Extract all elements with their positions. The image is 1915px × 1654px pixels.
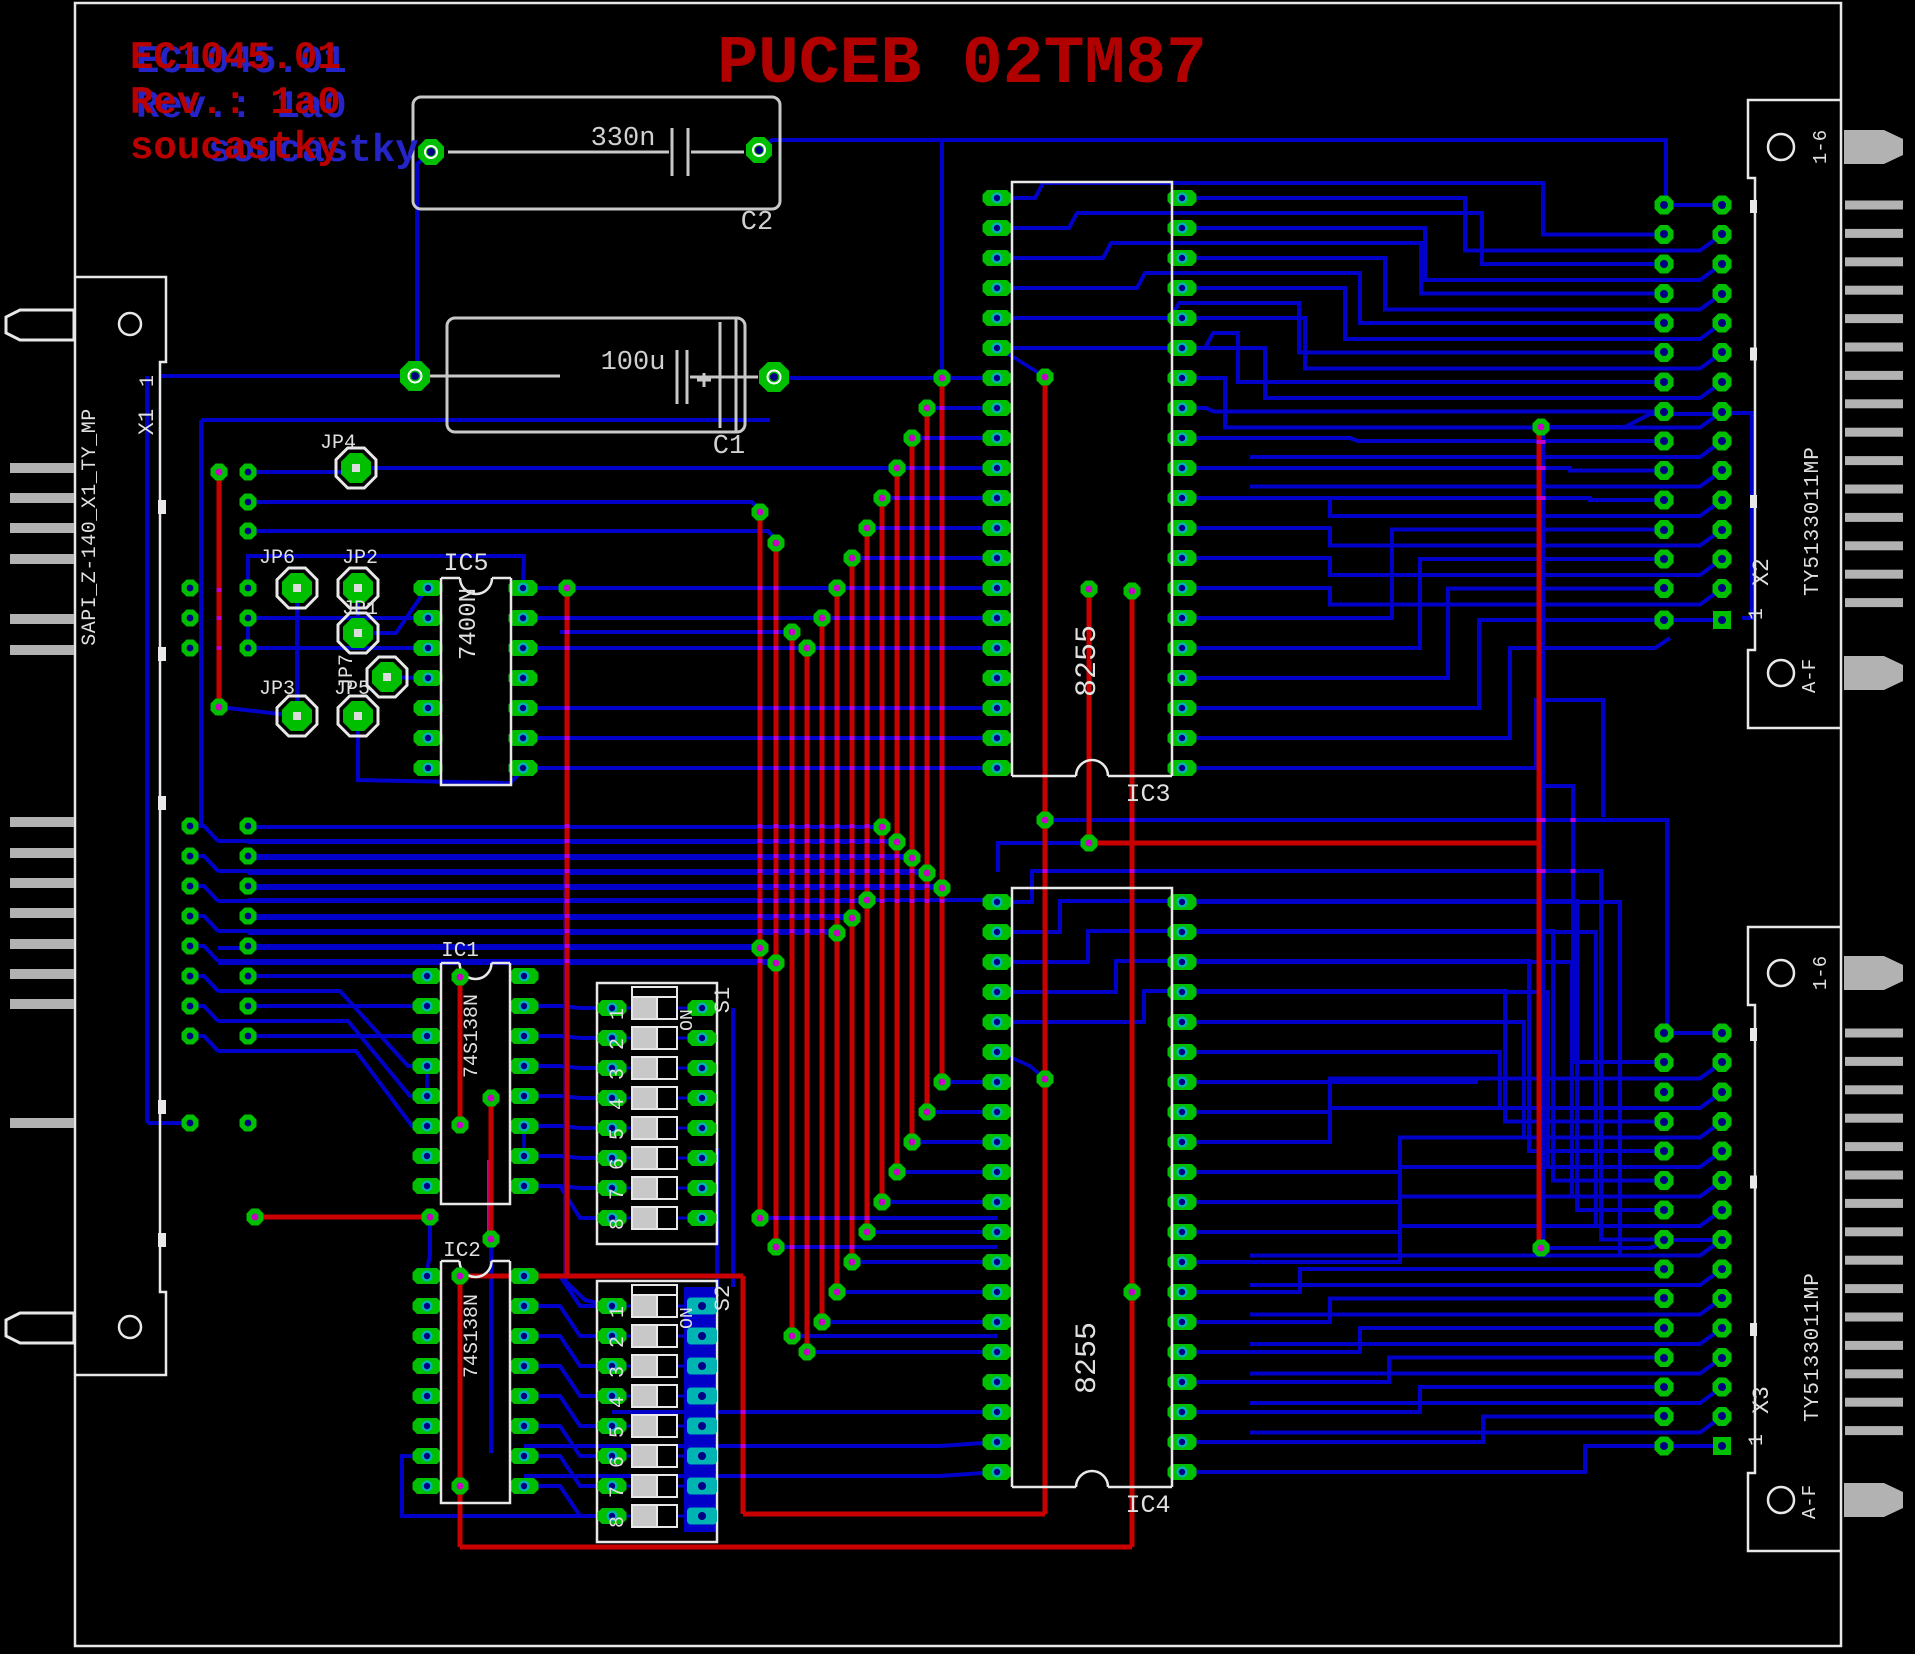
svg-text:7: 7 [607,1486,630,1498]
svg-text:IC3: IC3 [1125,780,1170,809]
svg-text:TY5133011MP: TY5133011MP [1802,446,1825,596]
svg-text:2: 2 [607,1336,630,1348]
svg-text:EC1045.01: EC1045.01 [130,36,341,80]
svg-text:JP3: JP3 [259,678,295,701]
svg-text:8255: 8255 [1071,1322,1105,1394]
svg-text:100u: 100u [601,348,666,378]
svg-text:4: 4 [607,1098,630,1110]
svg-text:TY5133011MP: TY5133011MP [1802,1272,1825,1422]
svg-text:74S138N: 74S138N [461,1294,484,1378]
svg-text:X2: X2 [1749,558,1775,586]
svg-text:C2: C2 [741,208,773,238]
svg-text:1: 1 [607,1008,630,1020]
svg-text:8255: 8255 [1071,625,1105,697]
svg-text:JP4: JP4 [320,432,356,455]
svg-text:6: 6 [607,1158,630,1170]
svg-text:JP1: JP1 [342,598,378,621]
svg-text:A-F: A-F [1799,659,1821,693]
svg-text:soucastky: soucastky [130,126,341,170]
svg-text:8: 8 [607,1218,630,1230]
svg-text:A-F: A-F [1799,1485,1821,1519]
svg-text:1: 1 [607,1306,630,1318]
svg-text:1-6: 1-6 [1810,956,1832,990]
svg-text:74S138N: 74S138N [461,994,484,1078]
svg-text:8: 8 [607,1516,630,1528]
svg-text:ON: ON [678,1307,698,1329]
svg-text:Rev.: 1a0: Rev.: 1a0 [130,81,341,125]
svg-text:JP2: JP2 [342,547,378,570]
svg-text:1-6: 1-6 [1810,130,1832,164]
svg-text:IC2: IC2 [443,1240,481,1263]
svg-text:JP6: JP6 [259,547,295,570]
svg-text:1: 1 [1746,608,1769,620]
svg-text:SAPI_Z-140_X1_TY_MP: SAPI_Z-140_X1_TY_MP [79,408,102,646]
svg-text:IC1: IC1 [441,940,479,963]
svg-text:X1: X1 [135,409,160,435]
svg-text:6: 6 [607,1456,630,1468]
svg-text:4: 4 [607,1396,630,1408]
svg-text:C1: C1 [713,432,745,462]
svg-text:7400N: 7400N [456,588,483,660]
svg-text:5: 5 [607,1128,630,1140]
svg-text:2: 2 [607,1038,630,1050]
svg-text:S1: S1 [711,987,736,1013]
svg-text:PUCEB 02TM87: PUCEB 02TM87 [717,26,1207,103]
svg-text:3: 3 [607,1366,630,1378]
svg-text:7: 7 [607,1188,630,1200]
svg-text:3: 3 [607,1068,630,1080]
svg-text:JP7: JP7 [336,654,359,690]
svg-text:1: 1 [137,375,160,387]
svg-text:S2: S2 [711,1285,736,1311]
svg-text:X3: X3 [1749,1386,1775,1414]
svg-text:IC4: IC4 [1125,1491,1170,1520]
svg-text:330n: 330n [591,124,656,154]
svg-text:IC5: IC5 [443,549,488,578]
svg-text:5: 5 [607,1426,630,1438]
svg-text:1: 1 [1746,1434,1769,1446]
svg-text:ON: ON [678,1009,698,1031]
